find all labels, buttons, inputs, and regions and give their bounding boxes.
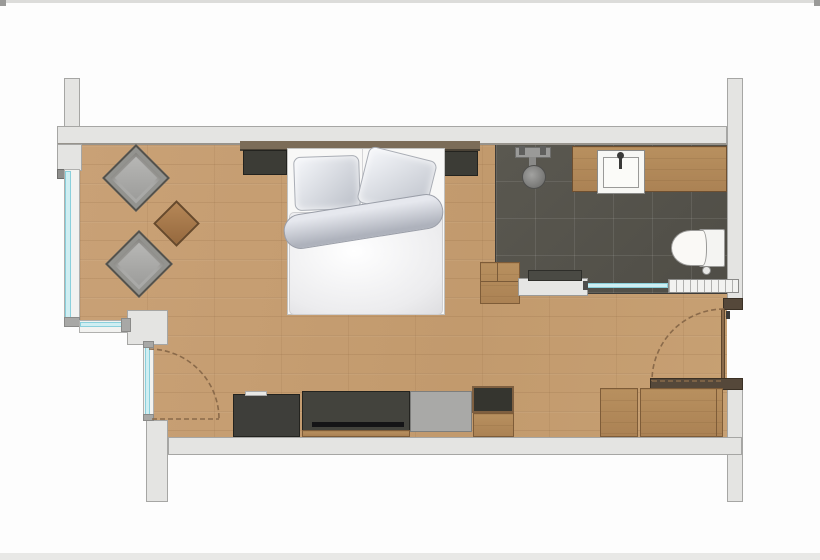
pillow-left: [293, 155, 361, 211]
minibar-top: [472, 386, 514, 413]
entrance-door-frame-top: [723, 298, 743, 310]
shower-head: [522, 165, 546, 189]
sideboard-shelf: [302, 430, 410, 437]
armchair-cushion: [118, 243, 160, 285]
bath-bench-shelf: [481, 281, 519, 282]
corner-mark-right: [814, 0, 820, 6]
nightstand-right: [443, 151, 478, 176]
glass-partition: [586, 283, 668, 288]
nightstand-left: [243, 150, 287, 175]
wall-right-upper: [727, 78, 743, 299]
faucet-stem: [619, 158, 622, 169]
corner-mark-left: [0, 0, 6, 6]
wall-top-left-return: [57, 144, 82, 171]
balcony-door-post-top: [143, 341, 154, 348]
entrance-door-handle: [726, 311, 730, 319]
minibar-cabinet: [473, 413, 514, 437]
window-corner-glass: [80, 322, 127, 327]
top-edge-band: [0, 0, 820, 3]
window-left-glass: [65, 171, 71, 320]
pillar-top-left: [64, 78, 80, 127]
balcony-door-glass: [145, 346, 150, 418]
balcony-door-post-bottom: [143, 414, 154, 421]
bath-storage-bench: [480, 262, 520, 304]
shower-knob-left: [519, 146, 525, 155]
pillar-bottom-left: [146, 420, 168, 502]
towel-radiator: [668, 279, 739, 293]
wardrobe-door-seam: [716, 389, 717, 436]
armchair-cushion: [115, 157, 157, 199]
sideboard-left: [233, 394, 300, 437]
bench-cushion: [528, 270, 582, 281]
toilet: [671, 230, 707, 266]
wardrobe-left: [600, 388, 638, 437]
bath-bench-divider: [497, 263, 498, 281]
wall-bottom: [168, 437, 742, 455]
wardrobe-right: [640, 388, 723, 437]
luggage-bench: [410, 391, 472, 432]
partition-post-left: [583, 281, 588, 290]
vanity-counter: [572, 146, 727, 192]
bottom-edge-band: [0, 553, 820, 560]
tv-panel: [312, 422, 404, 427]
flush-button: [702, 266, 711, 275]
shower-knob-right: [540, 146, 546, 155]
entrance-door-leaf: [721, 309, 725, 382]
floor-plan: [0, 0, 820, 560]
window-post-2: [121, 318, 131, 332]
window-post: [64, 317, 80, 327]
tray: [245, 391, 267, 396]
wall-step-block: [127, 310, 168, 345]
